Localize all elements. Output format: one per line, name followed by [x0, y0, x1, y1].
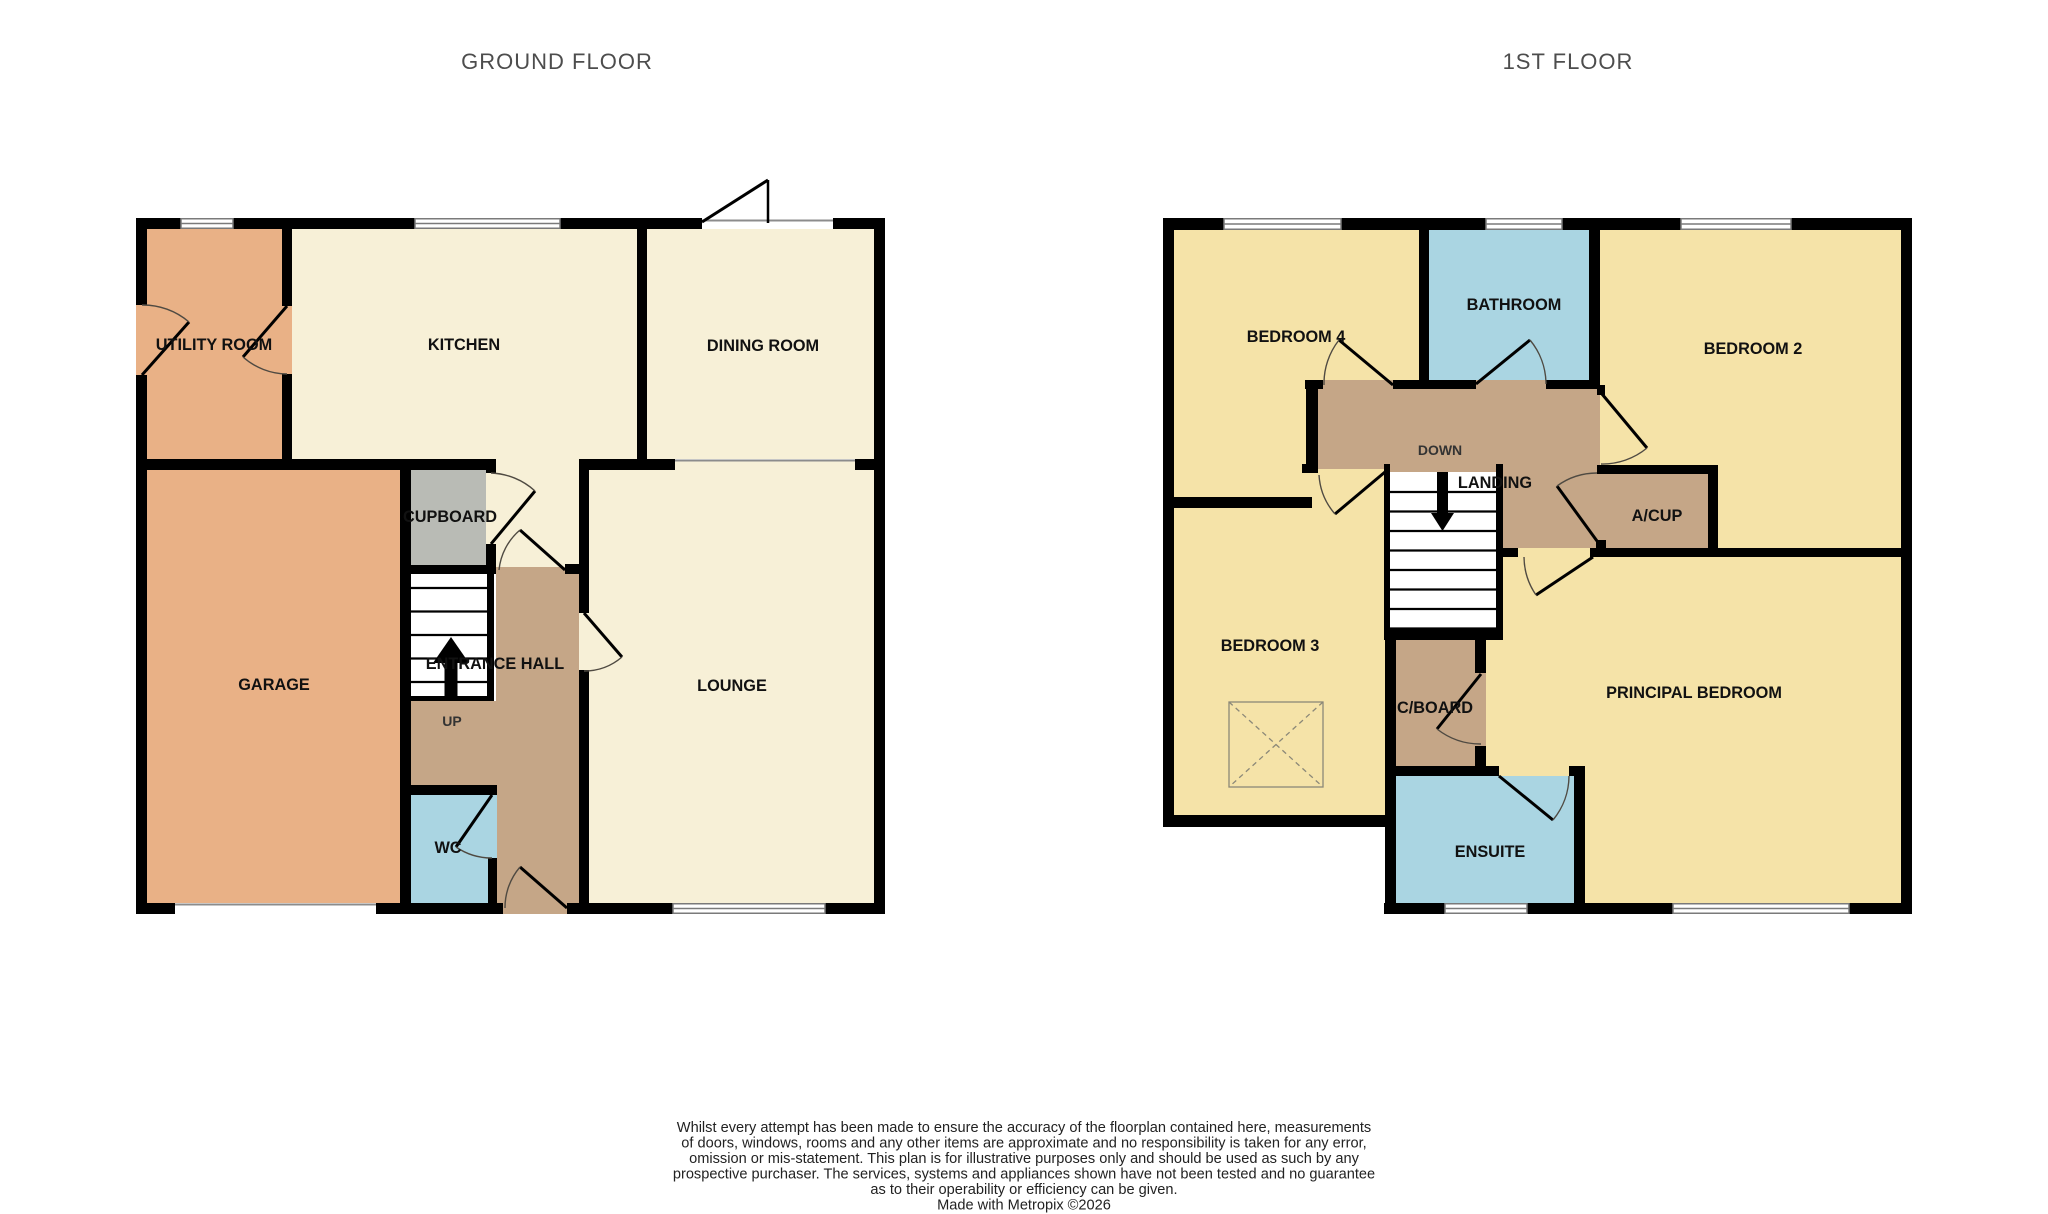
svg-text:UTILITY ROOM: UTILITY ROOM	[156, 336, 272, 354]
svg-text:BATHROOM: BATHROOM	[1467, 296, 1562, 314]
svg-text:Whilst every attempt has been: Whilst every attempt has been made to en…	[677, 1120, 1371, 1136]
svg-text:UP: UP	[442, 713, 461, 729]
svg-text:A/CUP: A/CUP	[1632, 507, 1683, 525]
svg-text:GARAGE: GARAGE	[238, 676, 310, 694]
svg-text:CUPBOARD: CUPBOARD	[403, 508, 497, 526]
svg-text:BEDROOM 4: BEDROOM 4	[1247, 328, 1346, 346]
svg-text:1ST FLOOR: 1ST FLOOR	[1503, 49, 1634, 74]
svg-text:ENSUITE: ENSUITE	[1455, 843, 1526, 861]
svg-text:GROUND FLOOR: GROUND FLOOR	[461, 49, 653, 74]
svg-text:of doors, windows, rooms and a: of doors, windows, rooms and any other i…	[681, 1136, 1366, 1152]
svg-text:BEDROOM 3: BEDROOM 3	[1221, 637, 1320, 655]
svg-text:prospective purchaser. The ser: prospective purchaser. The services, sys…	[673, 1167, 1375, 1183]
svg-text:DOWN: DOWN	[1418, 442, 1462, 458]
svg-text:LANDING: LANDING	[1458, 474, 1532, 492]
svg-text:PRINCIPAL BEDROOM: PRINCIPAL BEDROOM	[1606, 684, 1782, 702]
svg-text:KITCHEN: KITCHEN	[428, 336, 500, 354]
svg-text:as to their operability or eff: as to their operability or efficiency ca…	[870, 1182, 1177, 1198]
svg-text:Made with Metropix ©2026: Made with Metropix ©2026	[937, 1198, 1111, 1214]
svg-text:BEDROOM 2: BEDROOM 2	[1704, 340, 1803, 358]
svg-text:DINING ROOM: DINING ROOM	[707, 337, 819, 355]
svg-text:C/BOARD: C/BOARD	[1397, 699, 1473, 717]
svg-text:WC: WC	[434, 839, 461, 857]
svg-text:ENTRANCE HALL: ENTRANCE HALL	[426, 655, 564, 673]
svg-text:omission or mis-statement. Thi: omission or mis-statement. This plan is …	[689, 1151, 1359, 1167]
svg-text:LOUNGE: LOUNGE	[697, 677, 767, 695]
